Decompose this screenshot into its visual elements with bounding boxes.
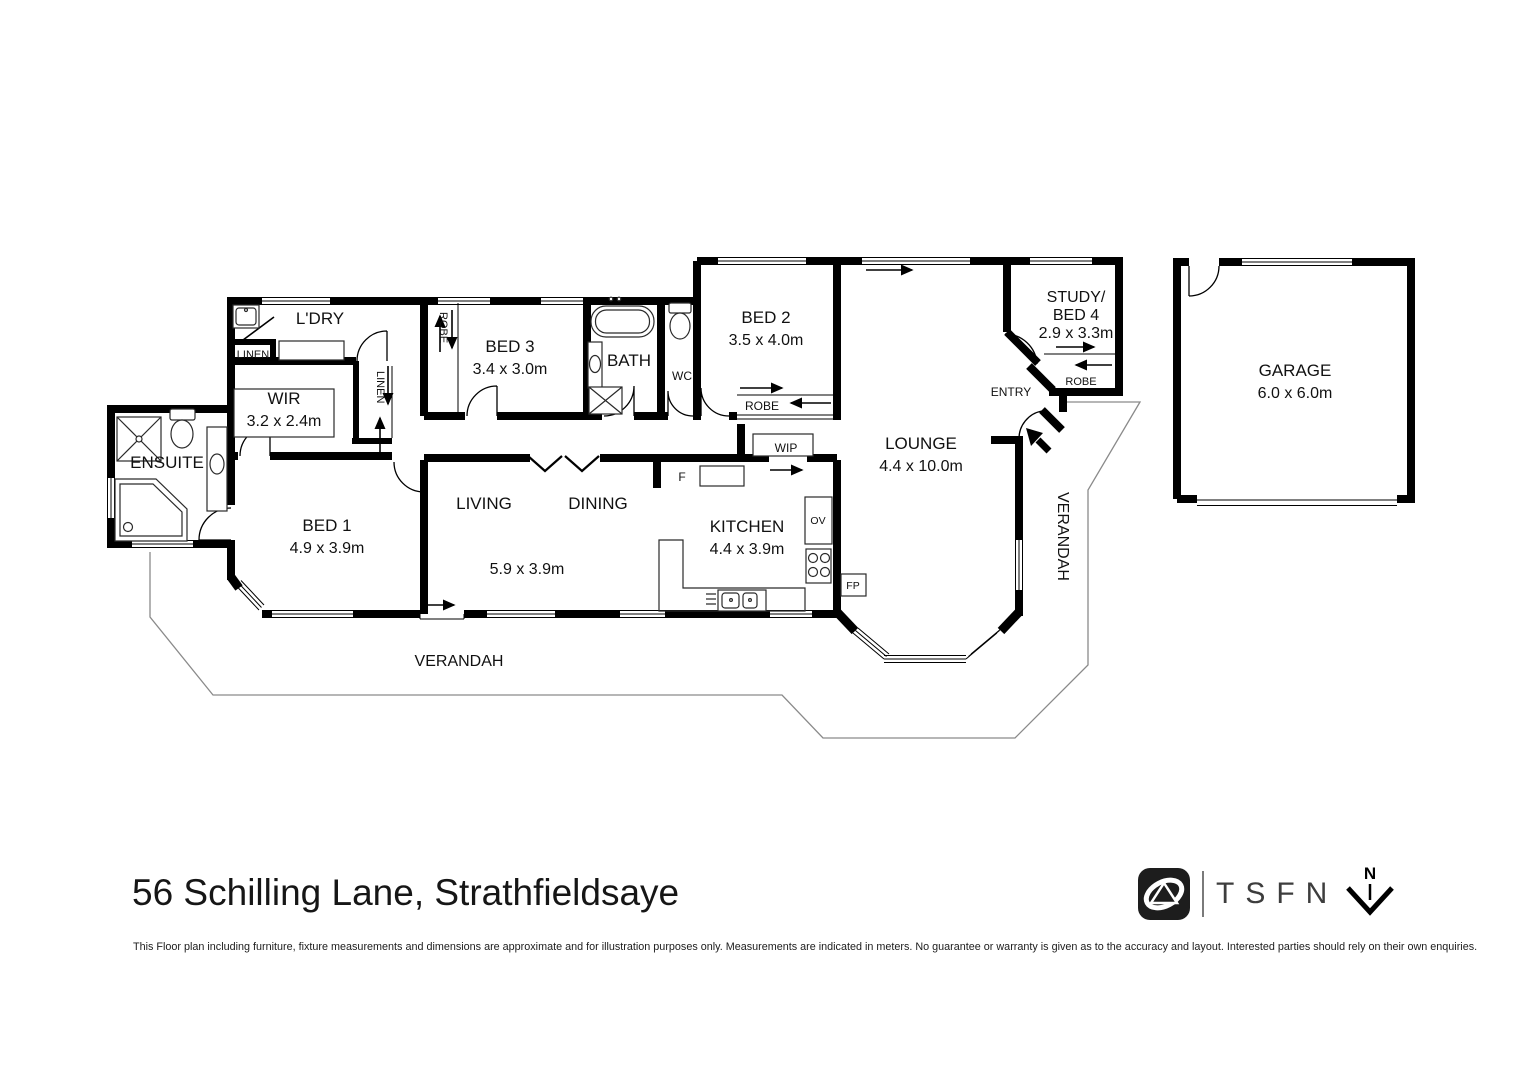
door-ensuite xyxy=(199,508,231,540)
window-garage xyxy=(1242,259,1352,266)
garage-door-lines xyxy=(1197,500,1397,506)
door-bed1 xyxy=(394,462,424,492)
room-label-bed2: BED 2 xyxy=(741,308,790,327)
door-bed3 xyxy=(467,386,497,416)
room-label-verandah-south: VERANDAH xyxy=(415,653,504,670)
toilet-icon-wc xyxy=(669,303,691,339)
room-label-wip: WIP xyxy=(775,441,798,455)
entry-arrow-icon xyxy=(1026,428,1049,451)
north-arrow-icon: N xyxy=(1341,866,1399,920)
window-bed1-bay xyxy=(236,581,264,611)
room-label-oven: OV xyxy=(810,515,825,527)
room-label-fireplace: FP xyxy=(846,580,859,592)
room-label-fridge: F xyxy=(678,470,685,484)
floorplan-page: L'DRY LINEN WIR 3.2 x 2.4m LINEN ENSUITE… xyxy=(0,0,1528,1080)
door-bed2 xyxy=(701,388,729,416)
window-bed3-a xyxy=(438,298,490,305)
room-label-ensuite: ENSUITE xyxy=(130,453,204,472)
room-label-wir: WIR xyxy=(267,389,300,408)
cooktop-icon xyxy=(806,549,831,583)
laundry-bench xyxy=(279,341,344,360)
window-bay-right xyxy=(966,628,1002,659)
window-lounge-right xyxy=(1016,540,1023,590)
room-label-lounge: LOUNGE xyxy=(885,434,957,453)
room-label-verandah-east: VERANDAH xyxy=(1054,492,1071,581)
vanity-icon-ensuite xyxy=(207,427,227,511)
door-ldry xyxy=(357,331,387,361)
door-wc xyxy=(668,391,693,416)
room-label-garage: GARAGE xyxy=(1259,361,1332,380)
window-lounge-top xyxy=(862,258,970,265)
floor-plan: L'DRY LINEN WIR 3.2 x 2.4m LINEN ENSUITE… xyxy=(0,0,1528,840)
window-bed3-b xyxy=(541,298,583,305)
room-label-entry: ENTRY xyxy=(991,385,1031,399)
opening-chevrons xyxy=(528,456,599,471)
tsfn-logo-icon xyxy=(1138,868,1190,920)
fridge-space xyxy=(700,466,744,486)
room-label-robe-bed2: ROBE xyxy=(745,399,779,413)
window-ldry xyxy=(262,298,330,305)
room-label-dining: DINING xyxy=(568,494,628,513)
page-title: 56 Schilling Lane, Strathfieldsaye xyxy=(132,872,679,914)
room-label-linen-hall: LINEN xyxy=(374,371,386,403)
room-label-wc: WC xyxy=(672,369,692,383)
window-ensuite-left xyxy=(108,478,115,518)
step-notch xyxy=(420,614,464,619)
room-dims-study: 2.9 x 3.3m xyxy=(1039,325,1114,342)
room-dims-lounge: 4.4 x 10.0m xyxy=(879,458,963,475)
window-bay-bottom xyxy=(884,656,966,663)
brand-logo: TSFN xyxy=(1138,866,1338,922)
room-label-robe-bed3: ROBE xyxy=(437,312,449,343)
room-label-bed3: BED 3 xyxy=(485,337,534,356)
door-garage xyxy=(1189,266,1219,296)
sink-icon xyxy=(706,590,766,611)
laundry-trough-icon xyxy=(233,305,259,328)
window-bed1 xyxy=(272,611,353,618)
room-label-linen: LINEN xyxy=(237,349,269,361)
room-label-ldry: L'DRY xyxy=(296,309,344,328)
room-dims-bed2: 3.5 x 4.0m xyxy=(729,332,804,349)
disclaimer-text: This Floor plan including furniture, fix… xyxy=(133,941,1477,953)
room-label-living: LIVING xyxy=(456,494,512,513)
room-dims-living-dining: 5.9 x 3.9m xyxy=(490,561,565,578)
logo-text: TSFN xyxy=(1216,868,1338,920)
corner-bath-icon xyxy=(115,479,187,541)
room-dims-bed3: 3.4 x 3.0m xyxy=(473,361,548,378)
toilet-icon-ensuite xyxy=(170,409,195,448)
window-bed2 xyxy=(718,258,806,265)
room-dims-wir: 3.2 x 2.4m xyxy=(247,413,322,430)
room-label-kitchen: KITCHEN xyxy=(710,517,785,536)
room-label-bath: BATH xyxy=(607,351,651,370)
window-bay-left xyxy=(853,628,889,659)
room-label-bed1: BED 1 xyxy=(302,516,351,535)
room-label-study-line2: BED 4 xyxy=(1053,307,1099,324)
window-study xyxy=(1030,258,1092,265)
shower-icon-bath xyxy=(589,387,622,414)
room-dims-garage: 6.0 x 6.0m xyxy=(1258,385,1333,402)
room-label-study-line1: STUDY/ xyxy=(1047,289,1106,306)
room-label-robe-study: ROBE xyxy=(1065,376,1096,388)
robe-bed2-front xyxy=(737,415,833,419)
window-dining xyxy=(620,611,665,618)
room-dims-kitchen: 4.4 x 3.9m xyxy=(710,541,785,558)
vanity-icon-bath xyxy=(588,342,602,388)
logo-separator xyxy=(1202,871,1204,917)
window-living xyxy=(487,611,555,618)
room-dims-bed1: 4.9 x 3.9m xyxy=(290,540,365,557)
